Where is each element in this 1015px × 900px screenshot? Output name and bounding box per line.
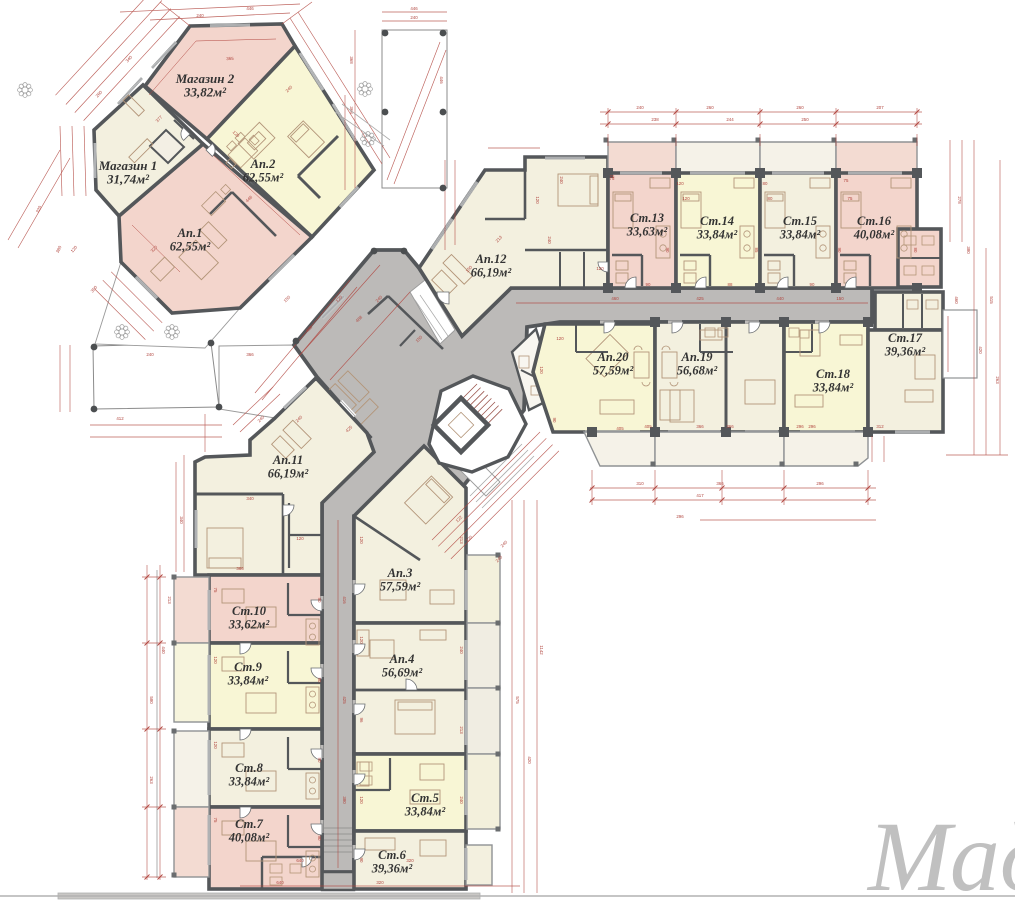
- svg-text:75: 75: [213, 818, 218, 823]
- svg-text:39,36м²: 39,36м²: [371, 862, 413, 876]
- svg-text:250: 250: [801, 117, 809, 122]
- svg-text:85: 85: [754, 248, 759, 253]
- svg-text:40,08м²: 40,08м²: [228, 831, 270, 845]
- svg-text:120: 120: [296, 536, 304, 541]
- svg-text:120: 120: [359, 536, 364, 544]
- svg-text:33,63м²: 33,63м²: [626, 225, 668, 239]
- svg-text:90: 90: [646, 282, 651, 287]
- svg-text:90: 90: [665, 248, 670, 253]
- svg-text:Ст.16: Ст.16: [857, 214, 892, 228]
- svg-text:446: 446: [246, 6, 254, 11]
- svg-text:366: 366: [726, 424, 734, 429]
- svg-text:75: 75: [844, 178, 849, 183]
- svg-text:580: 580: [149, 696, 154, 704]
- svg-text:260: 260: [796, 105, 804, 110]
- svg-text:420: 420: [978, 346, 983, 354]
- svg-text:310: 310: [636, 481, 644, 486]
- svg-text:296: 296: [808, 424, 816, 429]
- svg-text:263: 263: [995, 376, 1000, 384]
- svg-text:33,84м²: 33,84м²: [404, 805, 446, 819]
- svg-text:Ст.18: Ст.18: [816, 367, 851, 381]
- svg-text:365: 365: [226, 56, 234, 61]
- svg-text:380: 380: [342, 796, 347, 804]
- svg-text:368: 368: [349, 56, 354, 64]
- svg-text:120: 120: [676, 181, 684, 186]
- svg-text:366: 366: [716, 481, 724, 486]
- svg-text:405: 405: [644, 424, 652, 429]
- svg-text:240: 240: [146, 352, 154, 357]
- svg-text:416: 416: [342, 596, 347, 604]
- svg-text:Ап.1: Ап.1: [177, 226, 203, 240]
- svg-text:150: 150: [836, 296, 844, 301]
- svg-text:Ст.8: Ст.8: [235, 761, 264, 775]
- svg-text:Ап.20: Ап.20: [597, 350, 630, 364]
- svg-text:75: 75: [848, 196, 853, 201]
- svg-text:Ап.19: Ап.19: [681, 350, 714, 364]
- svg-text:213: 213: [459, 536, 464, 544]
- svg-text:240: 240: [547, 236, 552, 244]
- svg-text:366: 366: [246, 352, 254, 357]
- svg-text:90: 90: [552, 418, 557, 423]
- svg-text:120: 120: [682, 196, 690, 201]
- svg-text:33,62м²: 33,62м²: [228, 618, 270, 632]
- svg-text:640: 640: [276, 880, 284, 885]
- svg-text:244: 244: [726, 117, 734, 122]
- svg-text:90: 90: [317, 836, 322, 841]
- svg-text:66,19м²: 66,19м²: [471, 266, 512, 280]
- svg-text:80: 80: [913, 248, 918, 253]
- svg-text:440: 440: [161, 646, 166, 654]
- svg-text:340: 340: [246, 496, 254, 501]
- svg-text:Ап.11: Ап.11: [272, 453, 303, 467]
- svg-text:Ап.2: Ап.2: [250, 157, 276, 171]
- svg-text:240: 240: [196, 13, 204, 18]
- svg-text:366: 366: [236, 566, 244, 571]
- svg-text:33,84м²: 33,84м²: [228, 775, 270, 789]
- svg-text:425: 425: [342, 696, 347, 704]
- svg-text:120: 120: [556, 336, 564, 341]
- svg-text:240: 240: [459, 796, 464, 804]
- svg-text:263: 263: [149, 776, 154, 784]
- svg-text:Ст.9: Ст.9: [234, 660, 263, 674]
- svg-text:62,55м²: 62,55м²: [243, 171, 284, 185]
- svg-text:62,55м²: 62,55м²: [170, 240, 211, 254]
- svg-text:80: 80: [763, 181, 768, 186]
- svg-text:296: 296: [676, 514, 684, 519]
- svg-text:90: 90: [837, 248, 842, 253]
- svg-text:405: 405: [616, 426, 624, 431]
- svg-text:88: 88: [728, 282, 733, 287]
- svg-text:1142: 1142: [539, 645, 544, 655]
- svg-text:90: 90: [317, 598, 322, 603]
- svg-text:296: 296: [796, 424, 804, 429]
- svg-text:90: 90: [317, 758, 322, 763]
- svg-text:412: 412: [116, 416, 124, 421]
- svg-text:380: 380: [966, 246, 971, 254]
- svg-text:207: 207: [876, 105, 884, 110]
- svg-text:575: 575: [515, 696, 520, 704]
- svg-text:120: 120: [359, 636, 364, 644]
- svg-text:90: 90: [317, 678, 322, 683]
- svg-text:Ст.6: Ст.6: [378, 848, 407, 862]
- svg-text:320: 320: [376, 880, 384, 885]
- svg-text:33,84м²: 33,84м²: [812, 381, 854, 395]
- svg-text:640: 640: [296, 858, 304, 863]
- svg-text:40,08м²: 40,08м²: [853, 228, 895, 242]
- svg-text:278: 278: [957, 196, 962, 204]
- svg-text:515: 515: [989, 296, 994, 304]
- svg-text:Ап.12: Ап.12: [475, 252, 507, 266]
- svg-text:Ст.5: Ст.5: [411, 791, 439, 805]
- svg-text:57,59м²: 57,59м²: [593, 364, 634, 378]
- svg-text:56,69м²: 56,69м²: [382, 666, 423, 680]
- svg-text:Ст.17: Ст.17: [888, 331, 923, 345]
- svg-text:120: 120: [213, 741, 218, 749]
- svg-text:Ст.14: Ст.14: [700, 214, 734, 228]
- svg-text:33,84м²: 33,84м²: [696, 228, 738, 242]
- svg-text:Ст.15: Ст.15: [783, 214, 817, 228]
- svg-text:75: 75: [213, 588, 218, 593]
- svg-text:120: 120: [596, 266, 604, 271]
- svg-text:Мад: Мад: [866, 801, 1015, 900]
- svg-text:66,19м²: 66,19м²: [268, 467, 309, 481]
- svg-text:31,74м²: 31,74м²: [106, 172, 150, 187]
- svg-text:120: 120: [535, 196, 540, 204]
- svg-text:75: 75: [610, 174, 615, 179]
- svg-text:417: 417: [696, 493, 704, 498]
- svg-text:425: 425: [696, 296, 704, 301]
- svg-text:460: 460: [611, 296, 619, 301]
- svg-text:39,36м²: 39,36м²: [884, 345, 926, 359]
- svg-text:Ст.7: Ст.7: [235, 817, 264, 831]
- svg-text:213: 213: [167, 596, 172, 604]
- svg-text:446: 446: [439, 76, 444, 84]
- svg-text:340: 340: [179, 516, 184, 524]
- svg-text:96: 96: [359, 718, 364, 723]
- svg-text:440: 440: [776, 296, 784, 301]
- svg-text:Ап.3: Ап.3: [387, 566, 413, 580]
- svg-text:Ап.4: Ап.4: [389, 652, 415, 666]
- svg-text:56,68м²: 56,68м²: [677, 364, 718, 378]
- svg-text:420: 420: [527, 756, 532, 764]
- svg-text:90: 90: [810, 282, 815, 287]
- svg-text:120: 120: [213, 656, 218, 664]
- svg-text:460: 460: [954, 296, 959, 304]
- svg-text:Ст.10: Ст.10: [232, 604, 267, 618]
- svg-text:33,82м²: 33,82м²: [183, 85, 227, 100]
- svg-text:240: 240: [636, 105, 644, 110]
- svg-text:Ст.13: Ст.13: [630, 211, 664, 225]
- svg-text:57,59м²: 57,59м²: [380, 580, 421, 594]
- svg-text:213: 213: [459, 726, 464, 734]
- svg-text:312: 312: [876, 424, 884, 429]
- svg-text:33,84м²: 33,84м²: [227, 674, 269, 688]
- svg-text:240: 240: [459, 646, 464, 654]
- svg-text:366: 366: [696, 424, 704, 429]
- svg-text:260: 260: [706, 105, 714, 110]
- svg-text:120: 120: [539, 366, 544, 374]
- svg-text:240: 240: [559, 176, 564, 184]
- svg-text:80: 80: [768, 196, 773, 201]
- svg-text:238: 238: [651, 117, 659, 122]
- svg-text:296: 296: [816, 481, 824, 486]
- svg-text:446: 446: [410, 6, 418, 11]
- svg-text:240: 240: [410, 15, 418, 20]
- svg-text:33,84м²: 33,84м²: [779, 228, 821, 242]
- svg-text:120: 120: [359, 796, 364, 804]
- svg-text:90: 90: [359, 858, 364, 863]
